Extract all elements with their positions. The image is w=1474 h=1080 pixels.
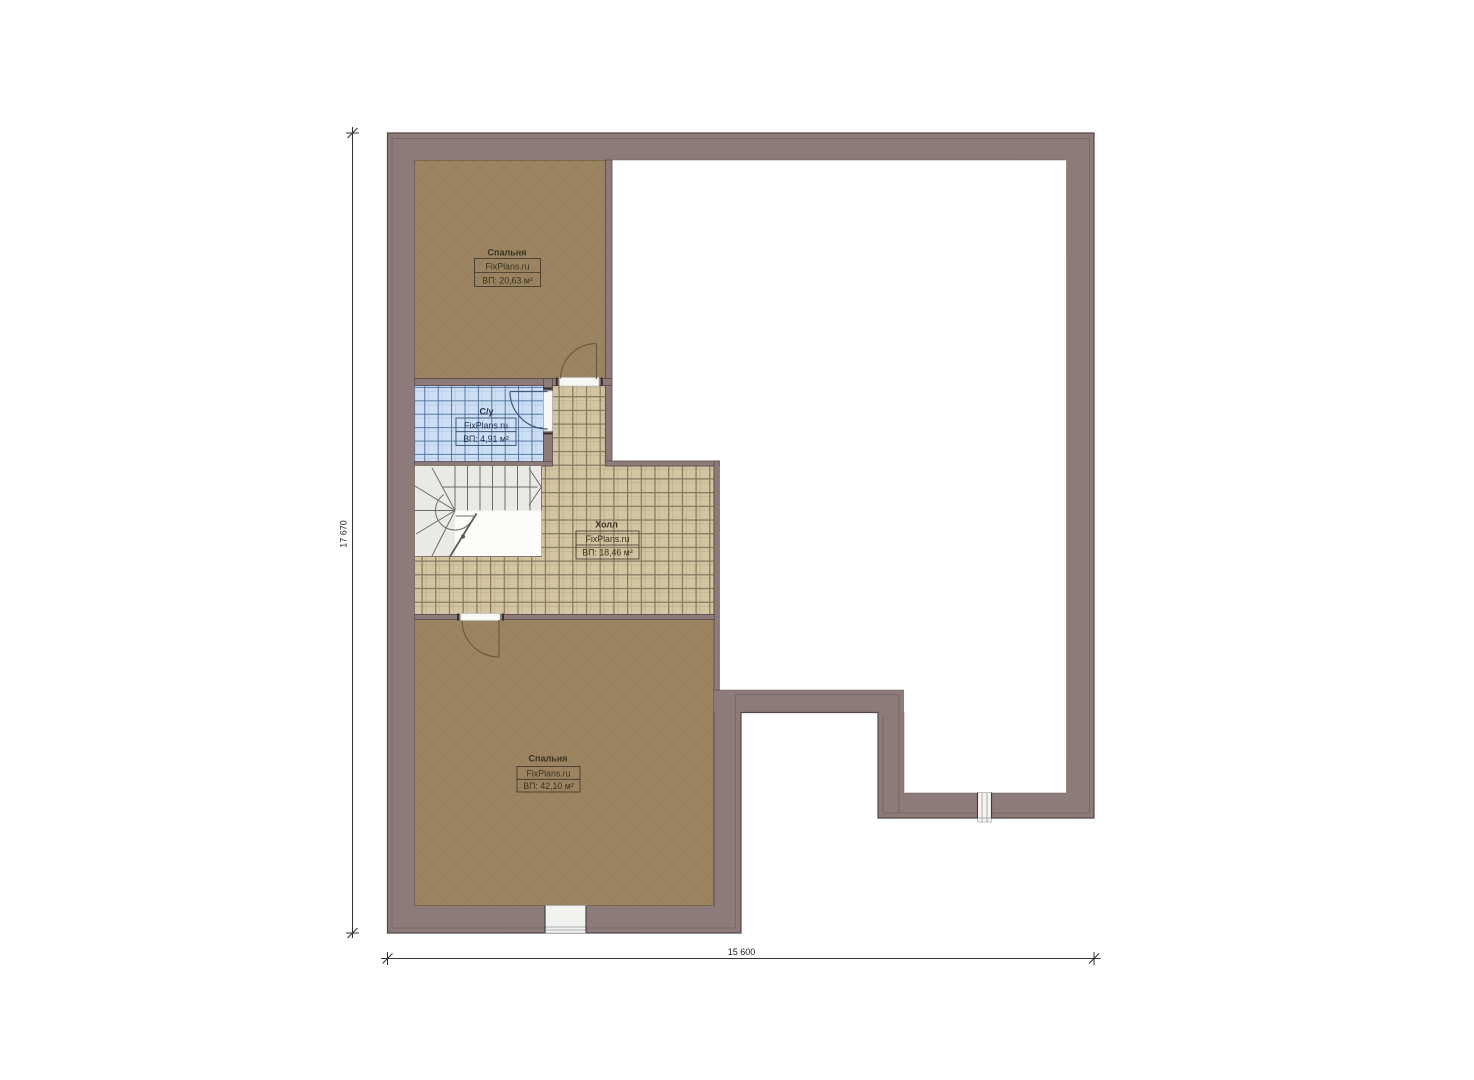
svg-text:ВП: 20,63 м²: ВП: 20,63 м² [482, 275, 533, 285]
svg-text:17 670: 17 670 [339, 520, 349, 548]
svg-text:15 600: 15 600 [728, 947, 756, 957]
svg-text:ВП: 18,46 м²: ВП: 18,46 м² [582, 548, 633, 558]
svg-text:Спальня: Спальня [488, 248, 527, 258]
svg-text:Спальня: Спальня [529, 754, 568, 764]
svg-text:FixPlans.ru: FixPlans.ru [464, 421, 508, 431]
svg-text:FixPlans.ru: FixPlans.ru [527, 768, 571, 778]
svg-text:ВП: 42,10 м²: ВП: 42,10 м² [523, 781, 574, 791]
svg-text:FixPlans.ru: FixPlans.ru [486, 262, 530, 272]
svg-text:Холл: Холл [595, 520, 618, 530]
svg-text:ВП: 4,91 м²: ВП: 4,91 м² [463, 434, 509, 444]
svg-text:FixPlans.ru: FixPlans.ru [586, 534, 630, 544]
svg-text:С/у: С/у [479, 407, 493, 417]
